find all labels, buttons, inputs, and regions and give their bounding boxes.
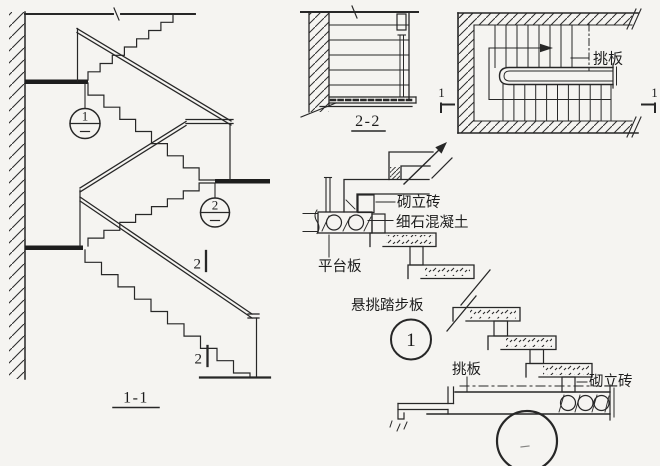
cut-mark-number: 2 xyxy=(195,352,203,368)
brick-on-edge-label: 砌立砖 xyxy=(589,373,633,390)
flight-top-steps xyxy=(88,14,195,80)
detail-bubble-2 xyxy=(497,411,557,466)
callout-lower-number: 2 xyxy=(212,198,219,213)
drawing-sheet: 1 2 2 2 1-1 xyxy=(0,0,660,466)
brick-on-edge-label: 砌立砖 xyxy=(397,194,441,211)
callout-upper-number: 1 xyxy=(82,109,89,124)
plan-cantilever-label: 挑板 xyxy=(593,50,623,68)
railing-post xyxy=(325,178,332,213)
cut-mark-number: 2 xyxy=(194,257,202,273)
svg-text:1: 1 xyxy=(406,330,416,351)
platform-slab-label: 平台板 xyxy=(318,257,362,275)
landing-slab-mid xyxy=(215,179,270,184)
cantilever-slab-label: 挑板 xyxy=(452,360,481,378)
fine-concrete-label: 细石混凝土 xyxy=(396,214,469,231)
direction-arrowhead xyxy=(540,44,553,52)
tread-lines xyxy=(329,25,409,85)
cantilever-tread-detail: 砌立砖 细石混凝土 平台板 悬挑踏步板 1 xyxy=(303,142,490,360)
section-cut-marks-2: 2 2 xyxy=(194,251,208,368)
stair-construction-drawing: 1 2 2 2 1-1 xyxy=(0,0,660,466)
top-wall-hatch xyxy=(458,13,632,25)
svg-text:1: 1 xyxy=(651,85,658,100)
tread-slab-3 xyxy=(408,265,474,279)
section-1-1-title: 1-1 xyxy=(123,390,149,407)
cantilever-tread-label: 悬挑踏步板 xyxy=(351,296,424,314)
brick-on-edge xyxy=(372,214,385,233)
brick-on-edge xyxy=(358,195,374,213)
flight-third-steps xyxy=(88,183,215,246)
wall-break-marks xyxy=(627,9,641,137)
detail-bubble-1: 1 xyxy=(391,320,431,360)
break-mark xyxy=(114,8,119,20)
bottom-wall-hatch xyxy=(458,121,632,133)
lower-flight-treads xyxy=(503,85,611,121)
landing-slab-upper xyxy=(25,80,88,85)
flight-second-steps xyxy=(88,83,215,180)
upper-tread-slab xyxy=(389,152,433,180)
tread-slab-5 xyxy=(488,336,556,350)
left-wall-hatch xyxy=(458,13,474,133)
wall-hatch xyxy=(309,12,329,112)
section-2-2-title: 2-2 xyxy=(355,113,381,130)
brick-on-edge xyxy=(562,377,575,392)
tread-slab-4 xyxy=(453,308,520,322)
brick-on-edge xyxy=(410,247,423,266)
railing-in-section xyxy=(398,35,406,96)
section-cut-mark-left: 1 xyxy=(438,85,454,112)
wall-hatch xyxy=(9,12,25,379)
stair-section-1-1: 1 2 2 2 1-1 xyxy=(9,8,270,408)
brick-on-edge xyxy=(530,350,544,364)
svg-text:1: 1 xyxy=(438,85,445,100)
tread-slab-2 xyxy=(370,233,436,247)
detail-callout-2: 2 xyxy=(201,184,230,227)
cantilever-slab-band xyxy=(320,97,416,107)
brick-on-edge xyxy=(494,321,508,336)
tread-slab-6 xyxy=(526,364,592,378)
cantilever-landing-detail: 挑板 砌立砖 xyxy=(390,308,633,466)
flight-bottom-steps xyxy=(85,250,250,378)
section-cut-mark-right: 1 xyxy=(642,85,658,112)
landing-slab-lower xyxy=(25,246,83,251)
landing-section-2-2: 2-2 xyxy=(301,6,418,131)
platform-slab xyxy=(303,210,372,234)
stair-plan: 挑板 1 1 xyxy=(438,9,658,137)
upper-flight-treads xyxy=(495,25,572,68)
detail-callout-1: 1 xyxy=(70,84,100,139)
trim-beam xyxy=(397,14,406,30)
